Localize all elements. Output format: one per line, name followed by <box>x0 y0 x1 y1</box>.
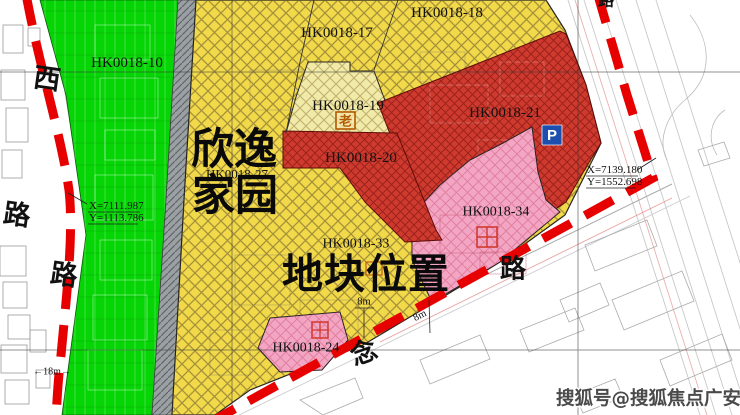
coord-left-y: Y=1113.786 <box>89 212 144 224</box>
road-char-lu-bottom: 路 <box>500 254 527 284</box>
road-char-lu-left1: 路 <box>2 197 34 232</box>
dimension-8m-a-label: 8m <box>357 297 370 308</box>
parcel-label-hk0018-18: HK0018-18 <box>411 5 483 21</box>
coord-right-x: X=7139.180 <box>587 164 643 176</box>
site-location-label: 地块位置 <box>282 250 450 298</box>
parcel-label-hk0018-24: HK0018-24 <box>273 341 340 356</box>
parcel-label-hk0018-34: HK0018-34 <box>463 205 530 220</box>
parcel-label-hk0018-33: HK0018-33 <box>323 237 390 252</box>
coord-right-y: Y=1552.698 <box>587 176 643 188</box>
parking-letter: P <box>547 127 557 144</box>
road-char-lu-left2: 路 <box>49 257 81 292</box>
watermark-text: 搜狐号@搜狐焦点广安站 <box>556 388 740 410</box>
map-canvas: HK0018-27 欣逸 家园 地块位置 HK0018-10 HK0018-17… <box>0 0 740 415</box>
road-char-west: 西 <box>32 62 63 95</box>
parcel-label-hk0018-21: HK0018-21 <box>469 105 541 121</box>
elder-care-symbol: 老 <box>336 112 355 129</box>
parking-icon: P <box>542 125 562 145</box>
site-name-line1: 欣逸 <box>191 125 277 175</box>
parcel-label-hk0018-20: HK0018-20 <box>325 150 397 166</box>
dimension-18m: ←18m→ <box>33 367 71 378</box>
planning-map: HK0018-27 欣逸 家园 地块位置 HK0018-10 HK0018-17… <box>0 0 740 415</box>
parcel-label-hk0018-10: HK0018-10 <box>91 55 163 71</box>
elder-care-char: 老 <box>338 114 352 129</box>
parcel-label-hk0018-17: HK0018-17 <box>301 25 373 41</box>
site-name-line2: 家园 <box>192 171 278 221</box>
coord-left-x: X=7111.987 <box>89 200 144 212</box>
road-char-top-right-clipped: 路 <box>598 0 615 10</box>
